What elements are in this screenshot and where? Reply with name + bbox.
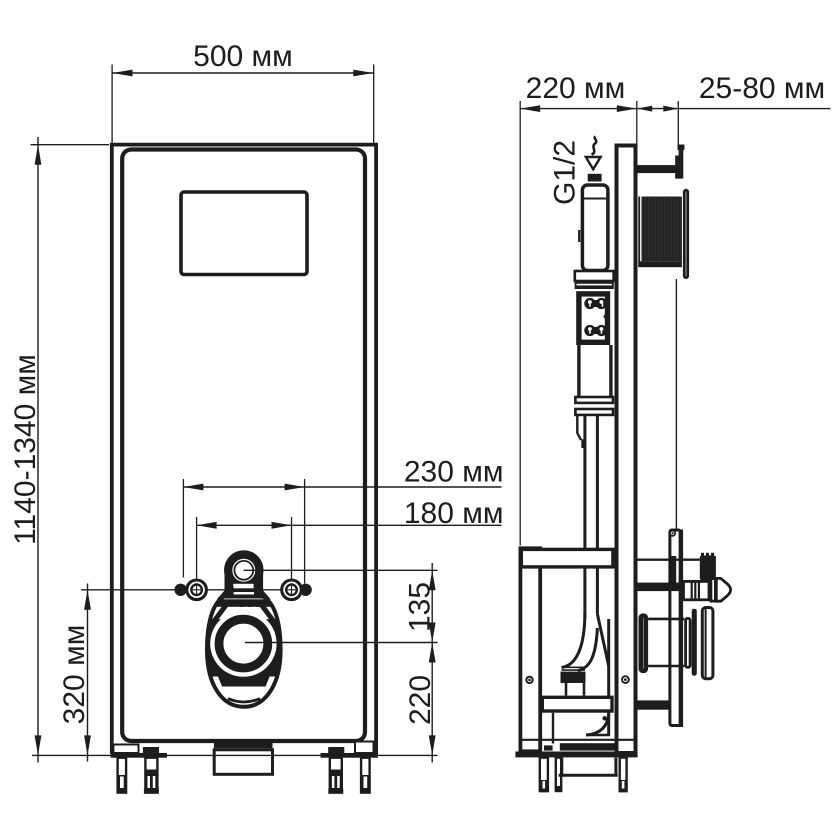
svg-text:220 мм: 220 мм	[526, 72, 626, 105]
svg-text:320 мм: 320 мм	[58, 625, 91, 725]
svg-text:25-80 мм: 25-80 мм	[699, 72, 825, 105]
svg-text:230 мм: 230 мм	[404, 456, 504, 489]
svg-text:135: 135	[404, 582, 437, 632]
svg-text:G1/2: G1/2	[549, 140, 582, 205]
svg-text:500 мм: 500 мм	[193, 40, 293, 73]
svg-text:1140-1340 мм: 1140-1340 мм	[9, 354, 42, 545]
svg-text:180 мм: 180 мм	[404, 497, 504, 530]
svg-text:220: 220	[404, 675, 437, 725]
